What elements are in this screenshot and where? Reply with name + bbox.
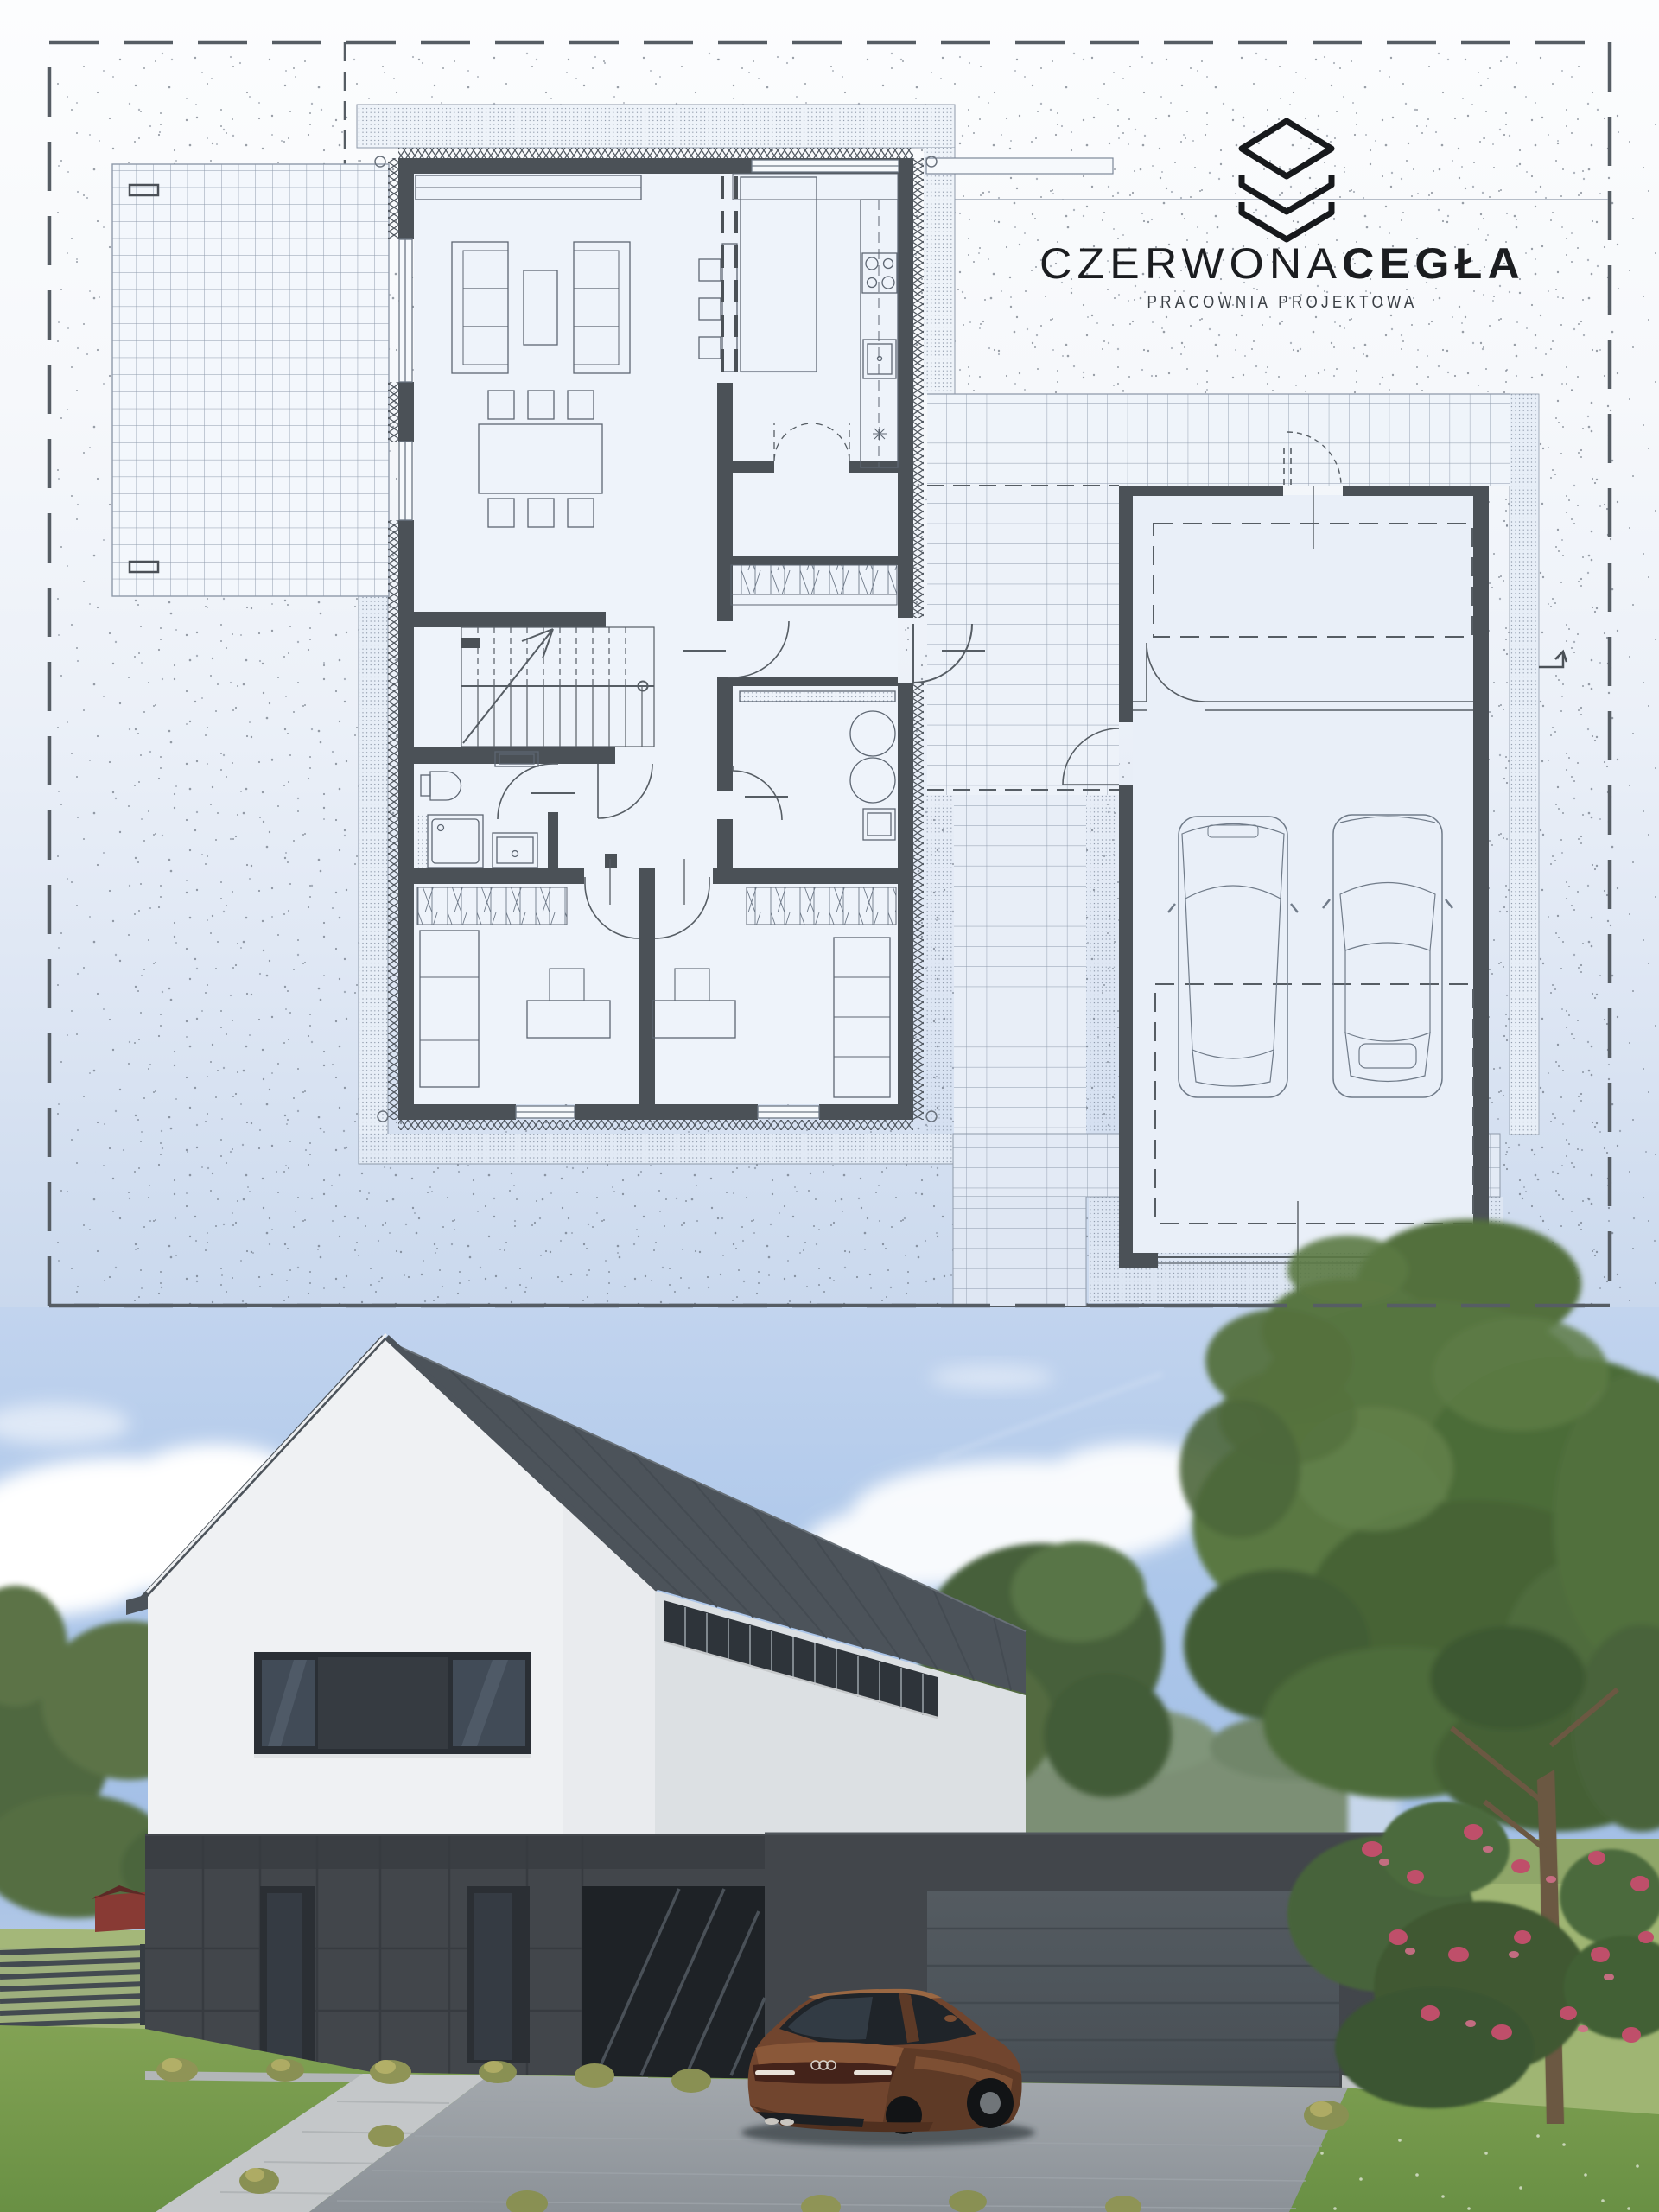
svg-text:CZERWONACEGŁA: CZERWONACEGŁA [1039, 239, 1525, 288]
svg-text:PRACOWNIA PROJEKTOWA: PRACOWNIA PROJEKTOWA [1147, 293, 1418, 312]
